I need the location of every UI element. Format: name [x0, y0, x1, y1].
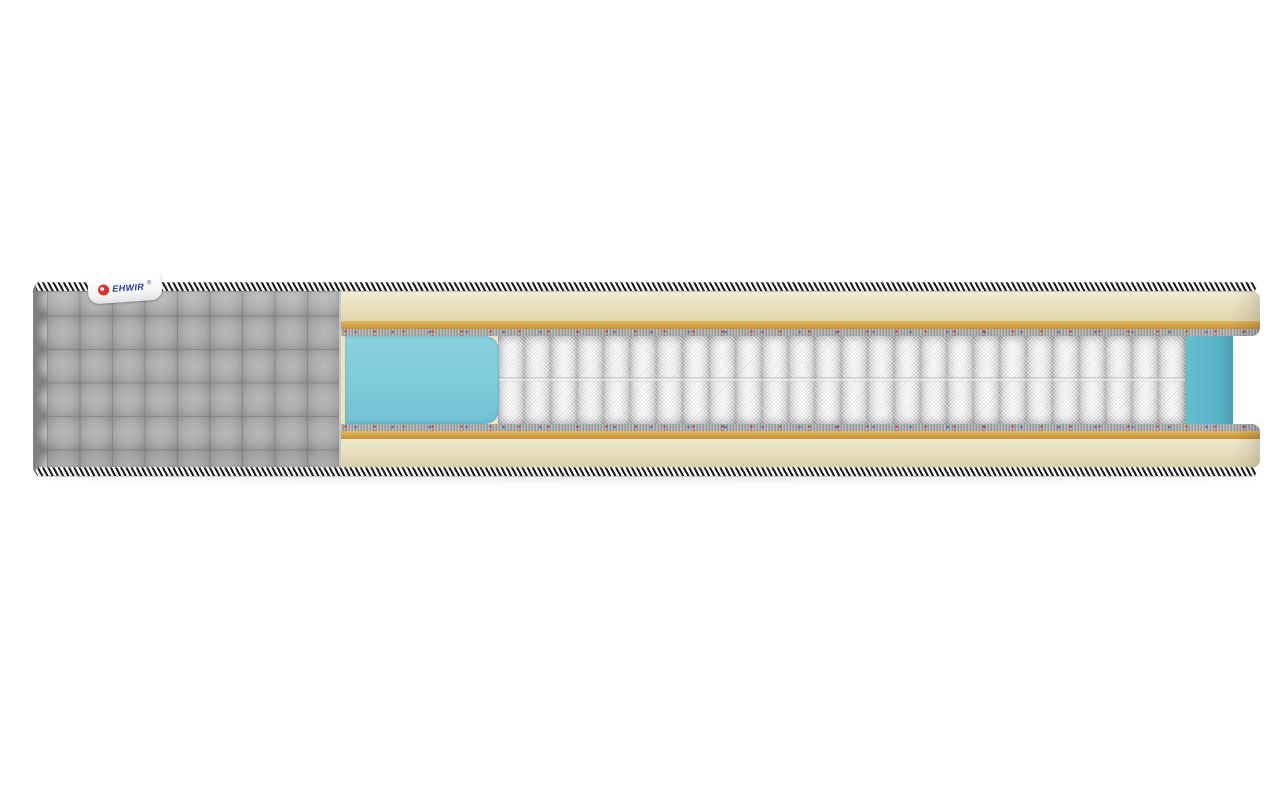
edge-tape-top: [36, 282, 1256, 291]
mattress-render: EHWIR ®: [33, 277, 1260, 481]
spring-pocket-seam: [498, 377, 1185, 382]
slab-end-shading-top: [1232, 291, 1260, 336]
brand-tag: EHWIR ®: [87, 272, 163, 304]
brand-tag-registered-mark: ®: [147, 280, 152, 286]
pocket-spring-unit: [498, 336, 1185, 424]
edge-tape-bottom: [36, 467, 1256, 476]
cover-scalloped-edge: [33, 282, 48, 476]
cover-quilt-face: [47, 282, 341, 476]
scene: EHWIR ®: [0, 0, 1280, 800]
slab-end-shading-bottom: [1232, 424, 1260, 468]
brand-tag-text: EHWIR: [112, 283, 145, 294]
side-foam-wall: [1185, 336, 1233, 424]
quilted-cover: [33, 282, 341, 476]
foam-cut-block: [345, 336, 499, 424]
brand-logo-icon: [98, 284, 110, 296]
